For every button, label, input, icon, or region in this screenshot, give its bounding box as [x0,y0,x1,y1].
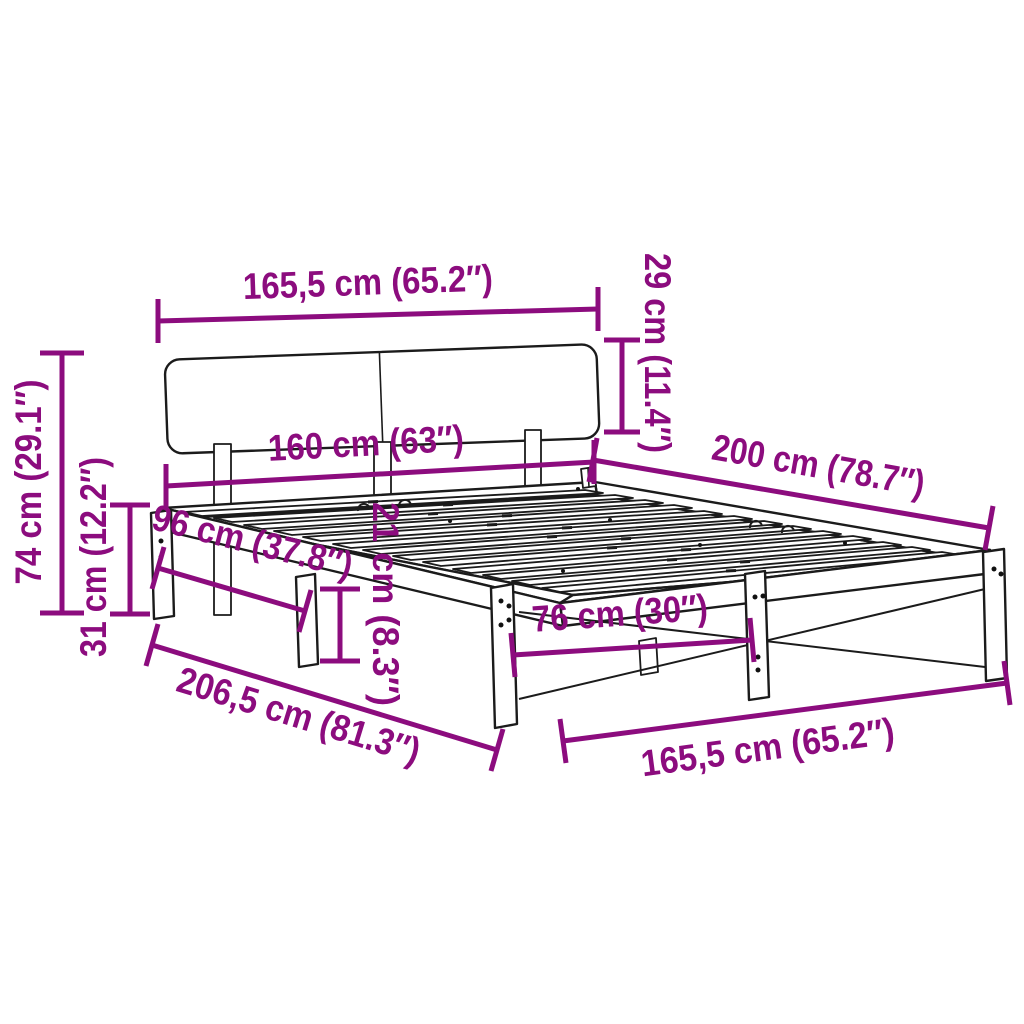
dimension-headboard-height: 29 cm (11.4″) [604,253,678,453]
dimension-label-frame-length: 200 cm (78.7″) [709,426,928,504]
dimension-headboard-width: 165,5 cm (65.2″) [158,257,598,343]
dimension-label-base-height: 31 cm (12.2″) [73,457,114,657]
dimension-label-frame-width: 165,5 cm (65.2″) [639,710,897,784]
dimension-label-headboard-height: 29 cm (11.4″) [637,253,678,453]
dimension-label-total-height: 74 cm (29.1″) [8,380,49,585]
dimension-label-frame-height: 21 cm (8.3″) [365,502,406,706]
bed-frame-diagram-canvas: 165,5 cm (65.2″) 29 cm (11.4″) 160 cm (6… [0,0,1024,1024]
leg-side-middle [296,574,318,667]
dimension-total-length: 206,5 cm (81.3″) [146,624,503,772]
dimension-label-headboard-width: 165,5 cm (65.2″) [242,257,493,307]
dimension-diagram: 165,5 cm (65.2″) 29 cm (11.4″) 160 cm (6… [0,0,1024,1024]
dimension-base-height: 31 cm (12.2″) [73,457,150,657]
dimension-frame-width: 165,5 cm (65.2″) [560,661,1010,784]
leg-foot-middle [745,571,769,700]
